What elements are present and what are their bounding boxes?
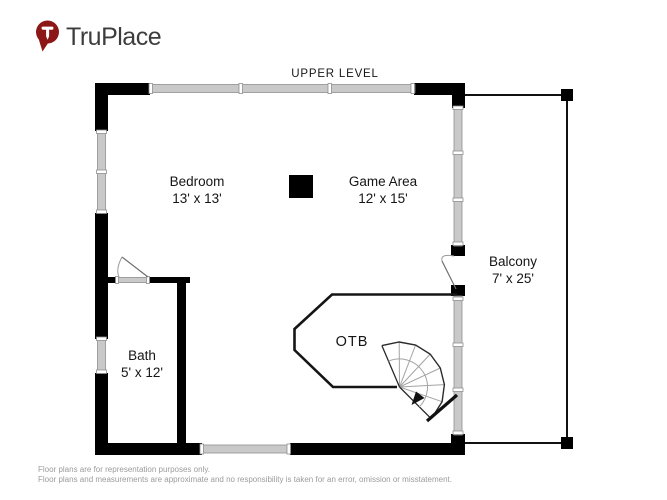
- balcony-post: [561, 89, 573, 101]
- window-tick: [453, 198, 463, 202]
- window-tick: [453, 388, 463, 392]
- windows: [97, 84, 464, 455]
- disclaimer-line-2: Floor plans and measurements are approxi…: [38, 475, 452, 485]
- window: [454, 107, 462, 246]
- window-tick: [200, 444, 204, 454]
- window: [150, 85, 415, 93]
- window-tick: [453, 151, 463, 155]
- balcony-outline: [465, 89, 573, 449]
- room-label-balcony: Balcony: [489, 254, 537, 269]
- otb-enclosure-wall: [295, 295, 458, 388]
- window-tick: [116, 277, 119, 284]
- window-tick: [97, 210, 107, 214]
- window: [98, 338, 106, 373]
- room-label-otb: OTB: [336, 334, 369, 350]
- disclaimer: Floor plans are for representation purpo…: [38, 465, 452, 485]
- window: [202, 445, 290, 453]
- wall-segment: [451, 245, 465, 256]
- window-tick: [453, 242, 463, 246]
- room-dims-balcony: 7' x 25': [492, 271, 534, 286]
- window-tick: [453, 343, 463, 347]
- spiral-staircase-icon: [382, 342, 457, 421]
- window-tick: [97, 337, 107, 341]
- room-label-game-area: Game Area: [349, 174, 418, 189]
- doors: [118, 255, 456, 289]
- window-tick: [149, 84, 153, 94]
- balcony-post: [561, 437, 573, 449]
- window-tick: [411, 84, 415, 94]
- window-tick: [97, 130, 107, 134]
- floor-plan: UPPER LEVEL: [0, 0, 667, 500]
- window-tick: [453, 106, 463, 110]
- window-tick: [453, 431, 463, 435]
- room-dims-game-area: 12' x 15': [358, 191, 407, 206]
- window: [454, 296, 462, 435]
- door-swing-icon: [442, 255, 456, 289]
- door-threshold: [117, 278, 148, 283]
- disclaimer-line-1: Floor plans are for representation purpo…: [38, 465, 452, 475]
- window-tick: [97, 170, 107, 174]
- wall-segment: [95, 213, 108, 339]
- room-label-bath: Bath: [128, 348, 156, 363]
- door-swing-icon: [118, 257, 148, 277]
- structural-column: [289, 175, 313, 198]
- room-dims-bath: 5' x 12': [121, 365, 163, 380]
- wall-segment: [95, 83, 108, 131]
- window-tick: [328, 84, 332, 94]
- wall-segment: [95, 373, 108, 455]
- room-dims-bedroom: 13' x 13': [172, 191, 221, 206]
- window-tick: [97, 370, 107, 374]
- exterior-walls: [95, 83, 465, 455]
- window-tick: [287, 444, 291, 454]
- room-label-bedroom: Bedroom: [170, 174, 225, 189]
- wall-segment: [290, 443, 465, 455]
- wall-segment: [177, 277, 186, 445]
- window-tick: [147, 277, 150, 284]
- window-tick: [453, 297, 463, 301]
- wall-segment: [414, 83, 465, 95]
- plan-title: UPPER LEVEL: [291, 68, 378, 80]
- window-tick: [239, 84, 243, 94]
